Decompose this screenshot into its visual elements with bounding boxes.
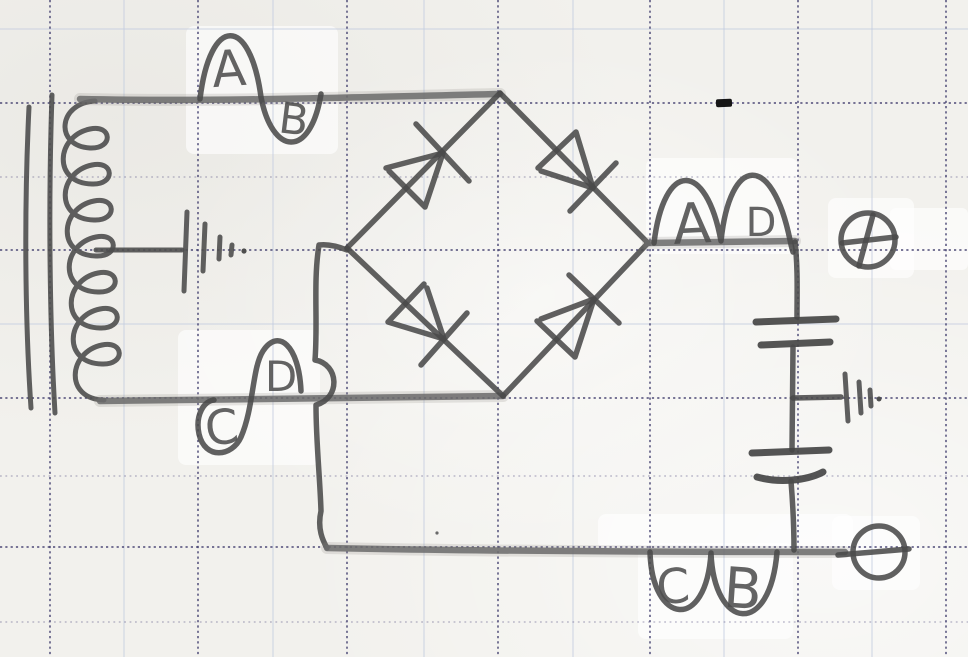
capacitor-top-icon: [756, 319, 836, 345]
bridge-edge: [503, 243, 648, 396]
phase-label-bottom-positive: D: [265, 352, 297, 401]
center-tap-ground-icon: [184, 212, 247, 291]
ground-bar: [203, 224, 205, 271]
wire-segment: [795, 242, 797, 317]
ground-dot: [877, 397, 882, 402]
ground-bar: [859, 382, 861, 413]
return-hump-label-second: B: [721, 556, 764, 624]
return-hump-label-first: C: [654, 558, 691, 616]
bridge-edge: [500, 93, 648, 243]
ground-bar: [870, 390, 871, 406]
ground-bar: [219, 237, 220, 259]
output-hump-label-first: A: [671, 191, 713, 258]
paper-patch: [890, 208, 968, 270]
transformer-core-line: [50, 95, 55, 413]
output-hump-label-second: D: [746, 200, 777, 246]
filter-network: [752, 242, 882, 550]
capacitor-bottom-icon: [752, 450, 829, 480]
schematic-drawing: A B C D: [0, 0, 968, 657]
wire-segment: [791, 481, 794, 550]
transformer-core-line: [26, 107, 31, 408]
ground-dot: [241, 248, 246, 253]
capacitor-plate: [756, 319, 836, 322]
pencil-speck: [435, 531, 438, 534]
ground-bar: [231, 245, 232, 255]
ground-bar: [845, 374, 848, 421]
ground-tap-wire: [793, 397, 841, 398]
ground-bar: [184, 212, 187, 291]
scanned-schematic-page: A B C D: [0, 0, 968, 657]
capacitor-plate: [752, 450, 829, 453]
phase-label-top-positive: A: [210, 39, 248, 99]
scan-artifact-mark: [716, 99, 732, 108]
capacitor-plate: [761, 342, 830, 345]
phase-label-top-negative: B: [276, 93, 311, 146]
bridge-edge: [347, 248, 503, 396]
phase-label-bottom-negative: C: [202, 398, 241, 457]
